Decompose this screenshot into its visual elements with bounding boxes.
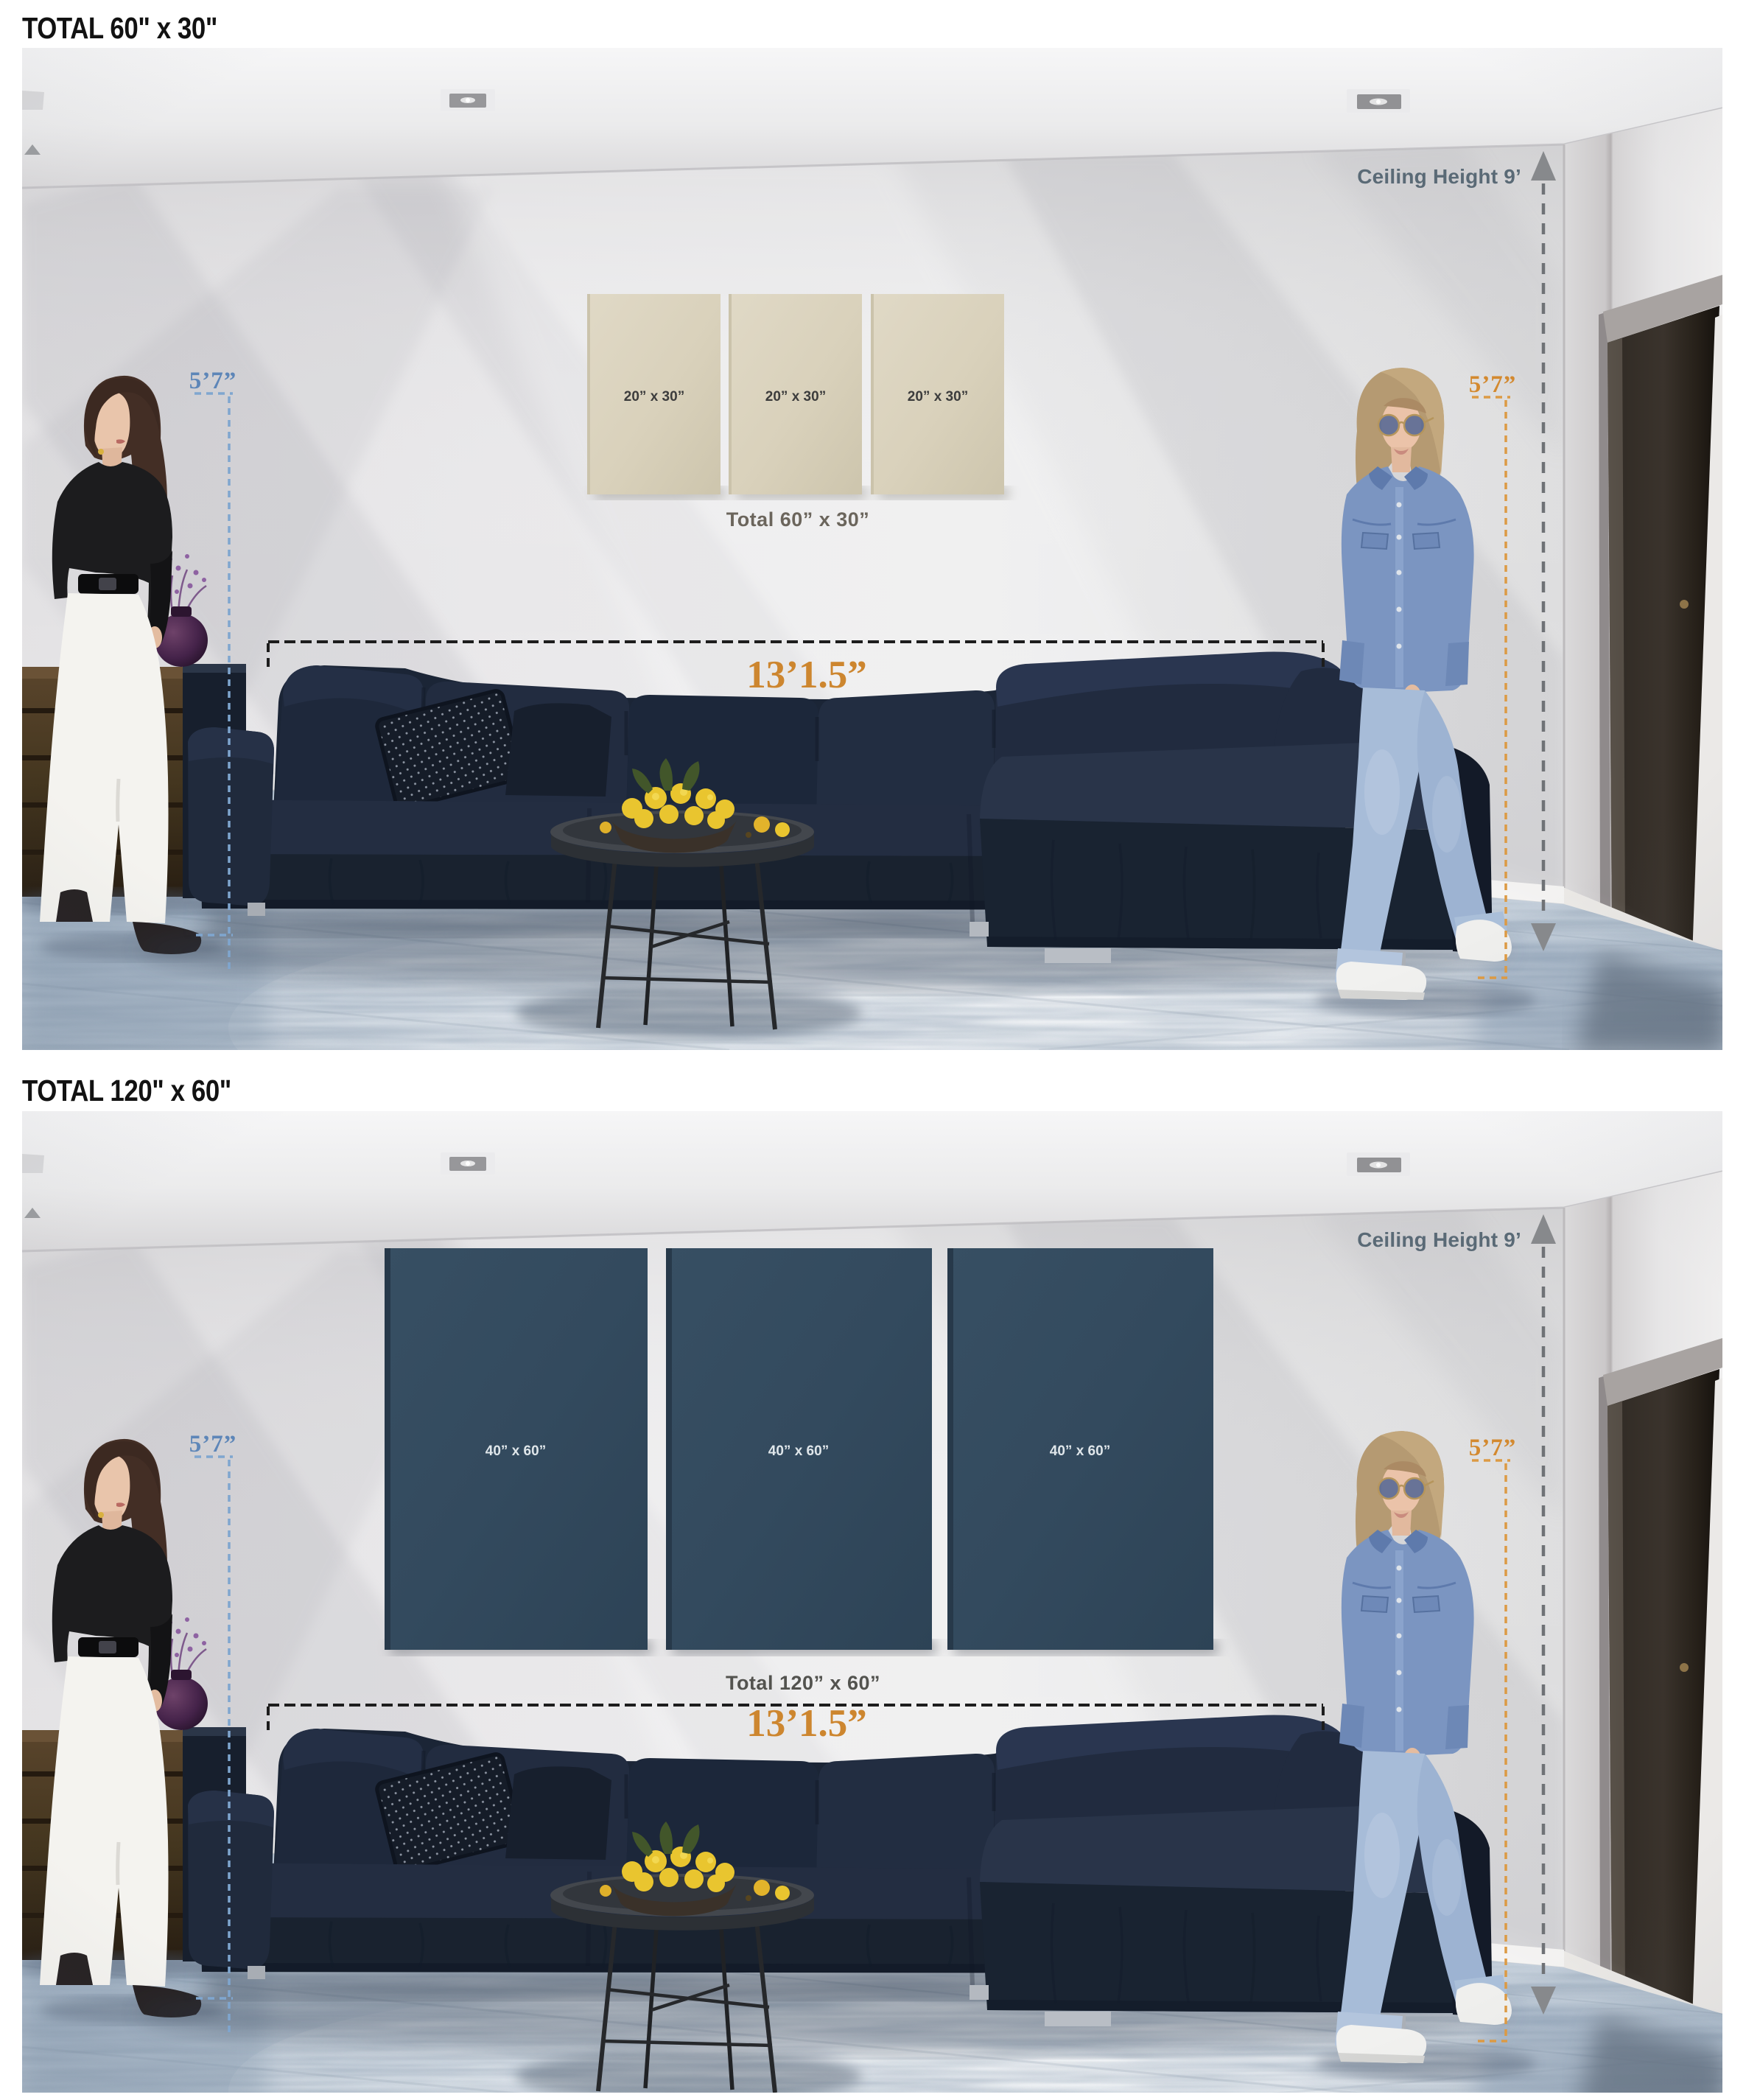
svg-text:20” x 30”: 20” x 30” [765,389,826,405]
svg-text:40” x 60”: 40” x 60” [768,1443,829,1459]
svg-text:20” x 30”: 20” x 30” [624,389,684,405]
svg-text:Total 60” x 30”: Total 60” x 30” [726,508,870,531]
svg-text:13’1.5”: 13’1.5” [746,654,866,696]
svg-text:40” x 60”: 40” x 60” [485,1443,546,1459]
svg-text:Total 120” x 60”: Total 120” x 60” [726,1672,880,1694]
svg-text:13’1.5”: 13’1.5” [746,1702,866,1745]
svg-text:20” x 30”: 20” x 30” [908,389,968,405]
svg-text:40” x 60”: 40” x 60” [1050,1443,1110,1459]
